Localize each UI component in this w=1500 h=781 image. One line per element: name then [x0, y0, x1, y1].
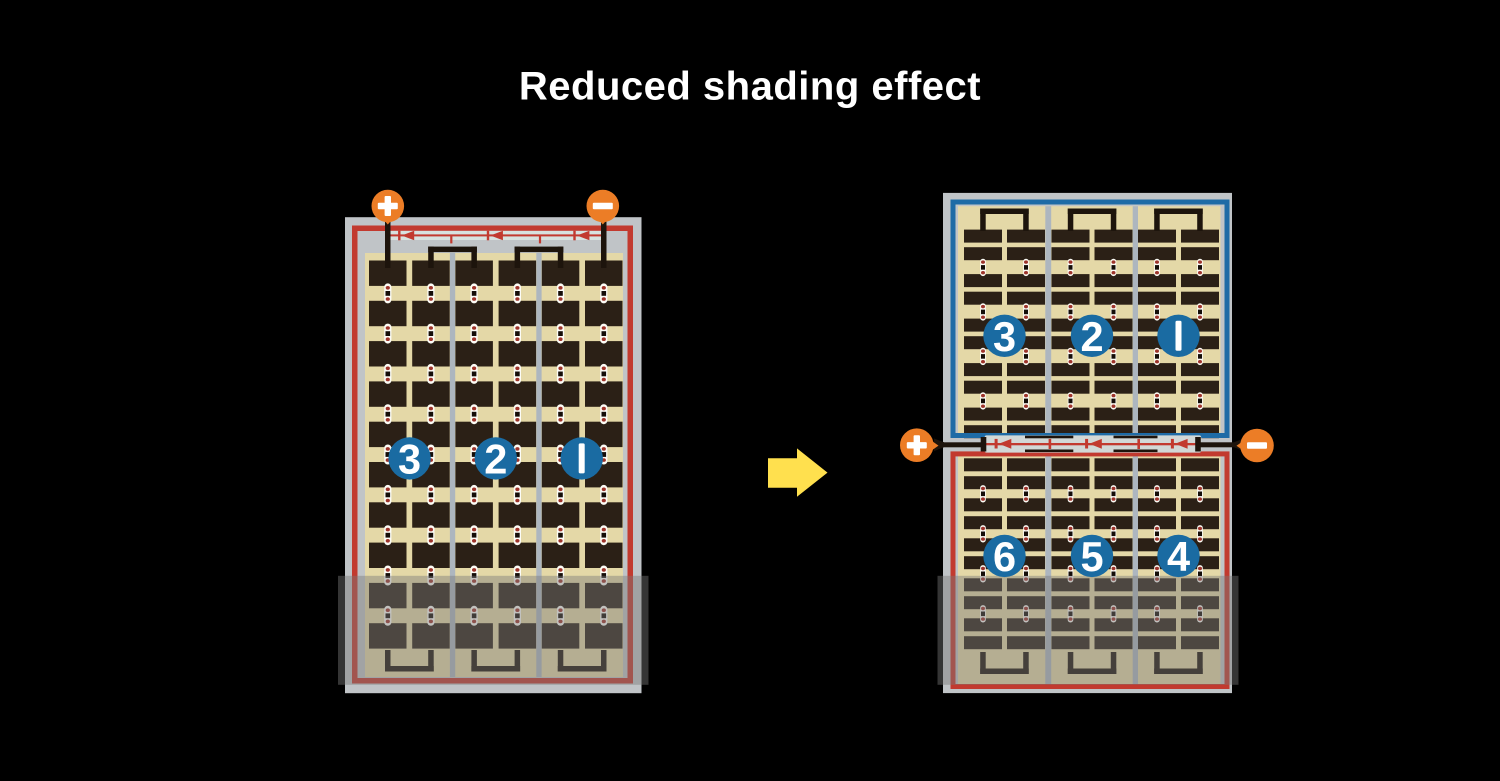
svg-text:4: 4 — [1167, 533, 1190, 580]
svg-text:Reduced shading effect: Reduced shading effect — [519, 65, 981, 109]
svg-text:2: 2 — [1080, 313, 1103, 360]
svg-text:3: 3 — [398, 435, 421, 482]
svg-text:3: 3 — [993, 313, 1016, 360]
svg-text:5: 5 — [1080, 533, 1103, 580]
svg-text:6: 6 — [993, 533, 1016, 580]
svg-text:2: 2 — [484, 435, 507, 482]
